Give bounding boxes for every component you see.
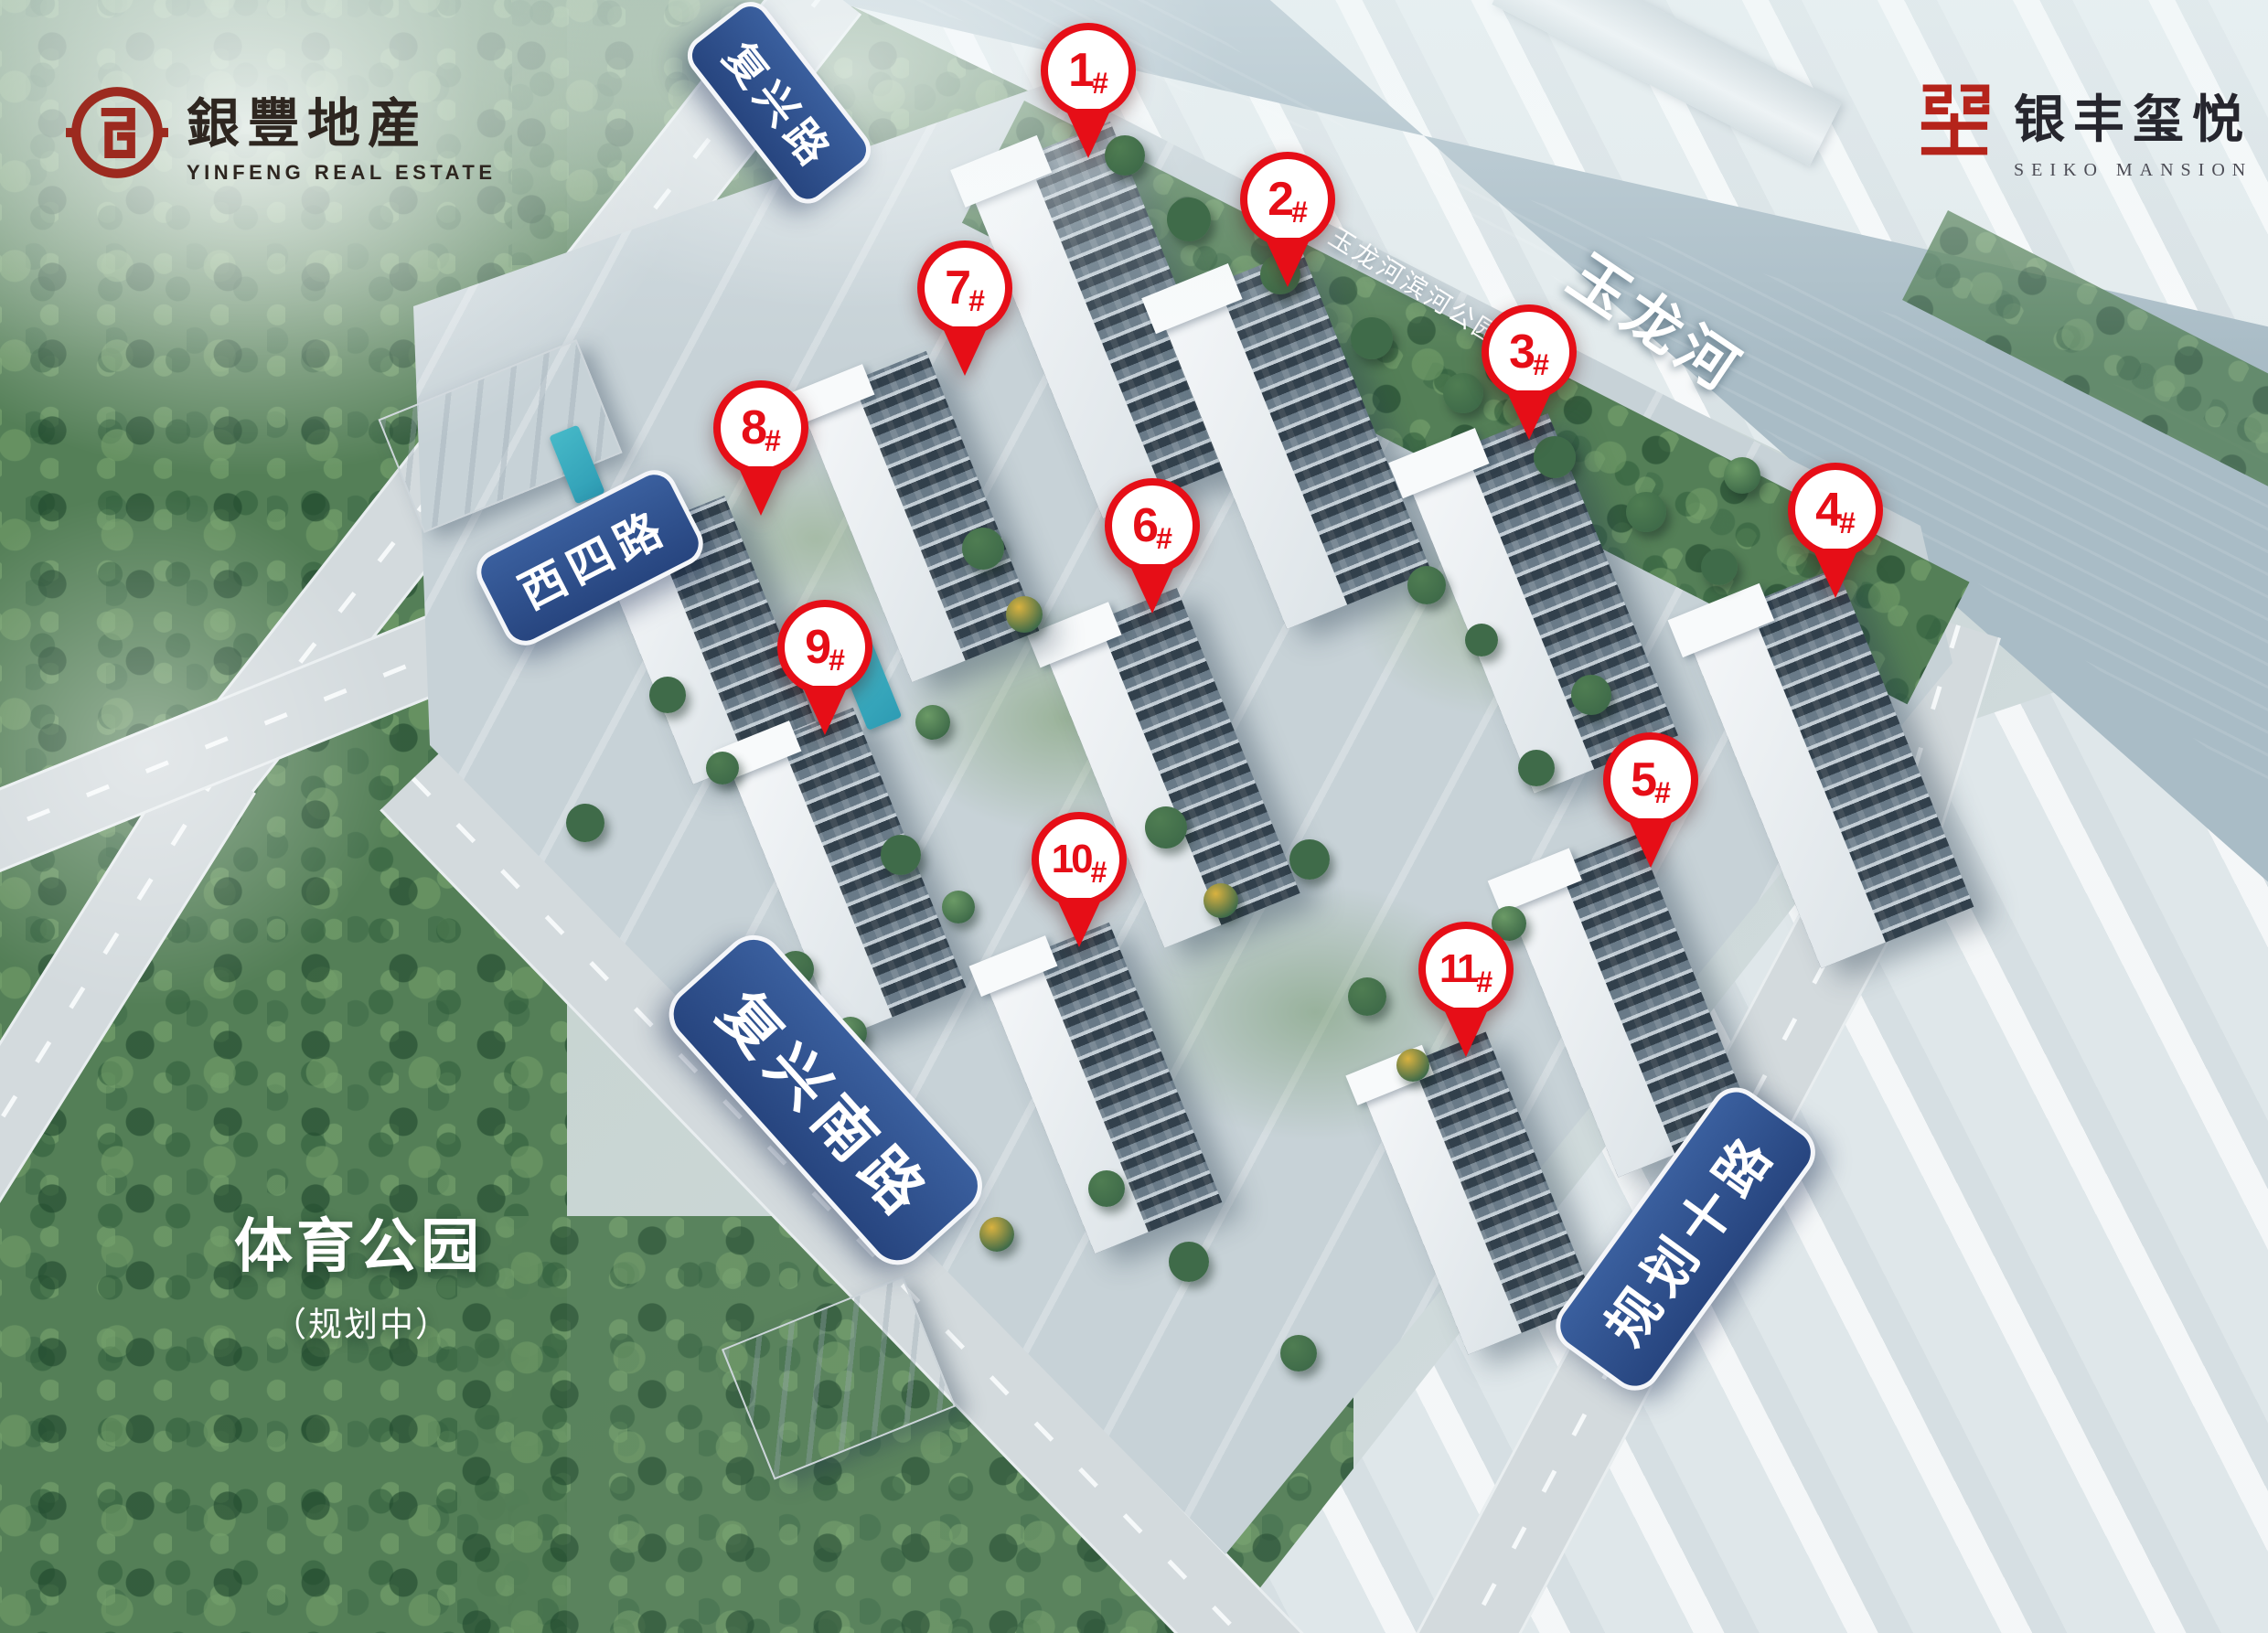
marker-tail: [942, 326, 988, 376]
tree: [962, 528, 1004, 570]
marker-circle: 10#: [1032, 812, 1127, 907]
site-plan-render: 銀豐地産 YINFENG REAL ESTATE 银丰玺悦 SEIKO MANS…: [0, 0, 2268, 1633]
tree: [1443, 373, 1483, 413]
marker-number: 3: [1509, 328, 1533, 376]
developer-name-en: YINFENG REAL ESTATE: [187, 161, 497, 185]
building-marker-6: 6#: [1105, 478, 1200, 614]
marker-number: 6: [1132, 502, 1156, 550]
tree: [566, 804, 604, 842]
marker-circle: 2#: [1240, 152, 1335, 247]
building-marker-2: 2#: [1240, 152, 1335, 287]
marker-tail: [1813, 549, 1858, 598]
marker-number: 4: [1815, 486, 1839, 534]
building-marker-8: 8#: [713, 380, 808, 516]
tree: [1204, 883, 1238, 918]
tree: [979, 1217, 1014, 1252]
building-marker-10: 10#: [1032, 812, 1127, 947]
marker-number: 9: [805, 624, 829, 671]
marker-number: 8: [741, 404, 765, 452]
tree: [1626, 492, 1666, 532]
marker-hash: #: [1156, 524, 1172, 553]
tree: [881, 835, 921, 875]
tree: [1351, 317, 1393, 359]
project-logo: 银丰玺悦 SEIKO MANSION: [1915, 79, 2252, 181]
tree: [1701, 549, 1738, 585]
tree: [1289, 839, 1330, 880]
marker-circle: 6#: [1105, 478, 1200, 573]
marker-tail: [1065, 109, 1111, 158]
project-logo-text: 银丰玺悦 SEIKO MANSION: [2014, 79, 2252, 181]
developer-logo: 銀豐地産 YINFENG REAL ESTATE: [66, 80, 497, 185]
marker-tail: [1628, 818, 1674, 868]
marker-hash: #: [1839, 508, 1856, 538]
marker-number: 2: [1268, 176, 1291, 223]
marker-number: 5: [1631, 756, 1654, 804]
marker-circle: 7#: [917, 240, 1012, 336]
marker-circle: 4#: [1788, 463, 1883, 558]
marker-circle: 3#: [1482, 304, 1577, 400]
marker-circle: 8#: [713, 380, 808, 475]
building-marker-7: 7#: [917, 240, 1012, 376]
tree: [1006, 596, 1043, 633]
building-marker-5: 5#: [1603, 732, 1698, 868]
building-marker-9: 9#: [777, 600, 872, 735]
marker-tail: [738, 466, 784, 516]
marker-hash: #: [1091, 858, 1107, 887]
tree: [1534, 436, 1576, 478]
marker-hash: #: [1476, 967, 1492, 997]
project-name-cn: 银丰玺悦: [2014, 79, 2252, 153]
marker-tail: [1056, 898, 1102, 947]
marker-number: 7: [945, 264, 968, 312]
marker-circle: 9#: [777, 600, 872, 695]
tree: [1088, 1170, 1125, 1207]
tree: [1465, 624, 1498, 656]
marker-circle: 11#: [1418, 922, 1514, 1017]
marker-hash: #: [968, 286, 985, 315]
marker-tail: [802, 686, 848, 735]
marker-number: 10: [1052, 839, 1091, 880]
tree: [1167, 197, 1211, 241]
marker-hash: #: [765, 426, 781, 455]
marker-number: 1: [1068, 47, 1092, 94]
tree: [1280, 1335, 1317, 1372]
tree: [1145, 806, 1187, 849]
seiko-mansion-icon: [1915, 79, 1994, 157]
marker-tail: [1506, 390, 1552, 440]
tree: [915, 705, 950, 740]
marker-tail: [1443, 1008, 1489, 1057]
marker-circle: 1#: [1041, 23, 1136, 118]
sports-park-title: 体育公园: [234, 1200, 483, 1284]
marker-hash: #: [1533, 350, 1549, 379]
building-marker-4: 4#: [1788, 463, 1883, 598]
sports-park-label: 体育公园 （规划中）: [234, 1200, 483, 1346]
developer-logo-text: 銀豐地産 YINFENG REAL ESTATE: [187, 80, 497, 185]
developer-name-cn: 銀豐地産: [187, 80, 497, 157]
tree: [1348, 977, 1386, 1016]
tree: [1169, 1242, 1209, 1282]
marker-tail: [1265, 238, 1311, 287]
yinfeng-seal-icon: [66, 81, 168, 184]
marker-tail: [1129, 564, 1175, 614]
marker-number: 11: [1439, 949, 1477, 989]
tree: [942, 891, 975, 923]
building-marker-1: 1#: [1041, 23, 1136, 158]
tree: [1724, 457, 1760, 494]
building-marker-11: 11#: [1418, 922, 1514, 1057]
sports-park-subtitle: （规划中）: [273, 1297, 483, 1346]
tree: [1571, 675, 1611, 715]
marker-hash: #: [829, 646, 845, 675]
tree: [1518, 750, 1555, 786]
marker-hash: #: [1291, 197, 1308, 227]
building-marker-3: 3#: [1482, 304, 1577, 440]
project-name-en: SEIKO MANSION: [2014, 160, 2252, 181]
tree: [1407, 566, 1446, 604]
tree: [649, 677, 686, 713]
marker-hash: #: [1654, 778, 1671, 807]
tree: [706, 752, 739, 784]
marker-hash: #: [1092, 69, 1108, 98]
marker-circle: 5#: [1603, 732, 1698, 827]
